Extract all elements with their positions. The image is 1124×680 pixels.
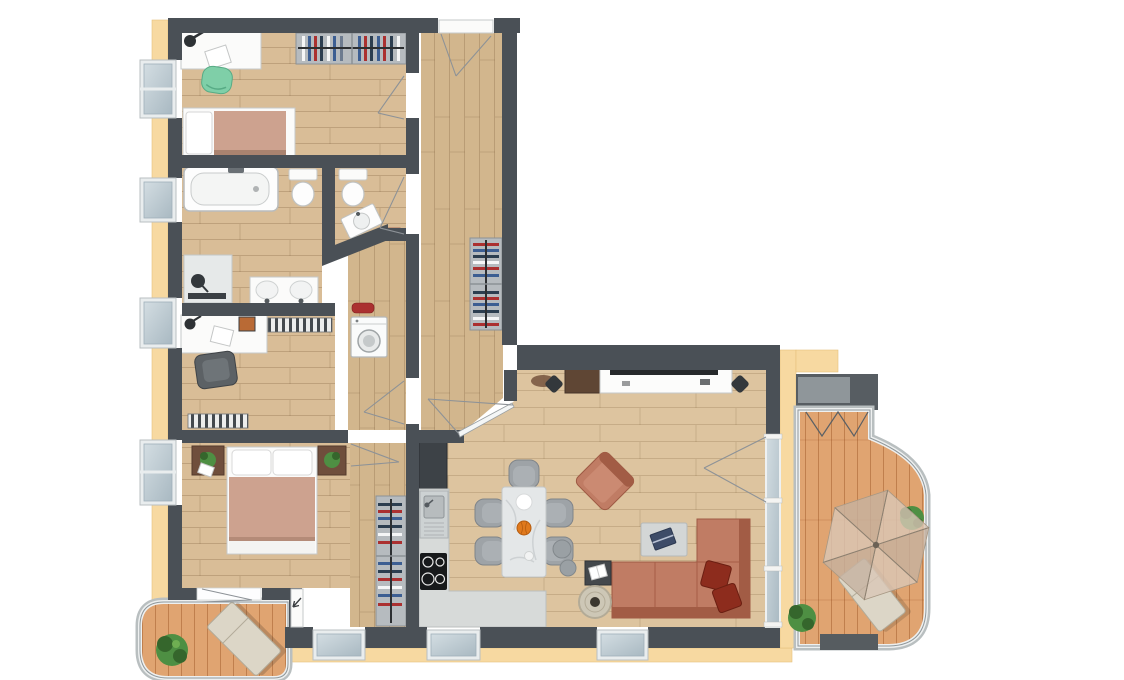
kitchen-tall-cabinet <box>419 440 447 489</box>
dressing-wardrobe <box>376 496 406 626</box>
corridor-exterior-door <box>291 589 303 627</box>
wall-bed1-bath <box>182 155 419 168</box>
wall-bottom <box>648 627 780 648</box>
wardrobe-bedroom-1 <box>296 33 406 64</box>
dining-table <box>502 487 546 577</box>
dining-chair-top <box>509 460 539 488</box>
wall-hall-right <box>502 18 517 345</box>
side-table <box>585 561 611 585</box>
bed-pillow <box>186 112 212 154</box>
radiator-office-window <box>188 414 248 428</box>
small-bowl <box>525 552 534 561</box>
terrace <box>788 374 935 650</box>
balcony-plant <box>156 634 188 666</box>
terrace-planter <box>820 634 878 650</box>
hall-closet <box>470 238 502 330</box>
green-chair <box>200 65 233 95</box>
double-washbasin <box>250 277 318 305</box>
kitchen-hob <box>420 553 447 590</box>
red-mat-utility <box>352 303 374 313</box>
kitchen-sink <box>420 491 448 538</box>
window-bottom-3 <box>597 630 648 660</box>
terrace-plant-left <box>788 604 816 632</box>
balcony-door-master <box>197 588 261 602</box>
nightstand-plant-right <box>324 452 340 468</box>
pillow-right <box>273 450 312 475</box>
dining-chair-right-1 <box>543 499 573 527</box>
wall-interior-a <box>406 424 419 627</box>
hallway-floor <box>421 33 503 436</box>
window-bathroom <box>140 178 176 222</box>
wall-office-master <box>182 430 348 443</box>
shower <box>184 255 232 303</box>
office-chair <box>194 350 238 389</box>
glass-wall-terrace <box>764 434 782 627</box>
facade-terrace-top <box>796 350 838 372</box>
brown-cabinet <box>565 368 600 393</box>
bathtub <box>184 166 278 211</box>
window-office <box>140 298 176 348</box>
radiator-office-wall <box>268 318 332 332</box>
wall-living-top <box>517 345 780 370</box>
window-bottom-1 <box>313 630 365 660</box>
pouf-1 <box>553 540 571 558</box>
pouf-2 <box>560 560 576 576</box>
dining-chair-left-2 <box>475 537 505 565</box>
wall-living-right-upper <box>766 370 780 436</box>
toilet-wc <box>339 169 367 206</box>
wall-bath-office <box>182 303 335 316</box>
window-bottom-2 <box>427 630 480 660</box>
pillow-left <box>232 450 271 475</box>
wall-stub <box>504 370 517 401</box>
tv-sideboard <box>600 369 732 393</box>
floor-plan-image <box>0 0 1124 680</box>
round-table <box>579 586 611 618</box>
single-bed <box>183 108 295 158</box>
window-master-bedroom <box>140 440 176 505</box>
desk-picture <box>239 317 255 331</box>
double-bed-blanket <box>229 477 315 541</box>
double-bed <box>227 447 317 554</box>
terrace-awning-light <box>798 377 850 403</box>
pumpkin <box>517 521 531 535</box>
plate <box>516 494 532 510</box>
coffee-table <box>641 523 687 556</box>
balcony <box>140 599 288 680</box>
window-bedroom-1 <box>140 60 176 118</box>
wall-top-left <box>168 18 438 33</box>
bed-blanket <box>214 111 286 156</box>
dining-chair-left-1 <box>475 499 505 527</box>
hallway <box>470 238 502 330</box>
washing-machine <box>351 317 387 357</box>
wall-left <box>168 505 182 600</box>
toilet-bathroom <box>289 169 317 206</box>
floor-plan-canvas <box>0 0 1124 680</box>
